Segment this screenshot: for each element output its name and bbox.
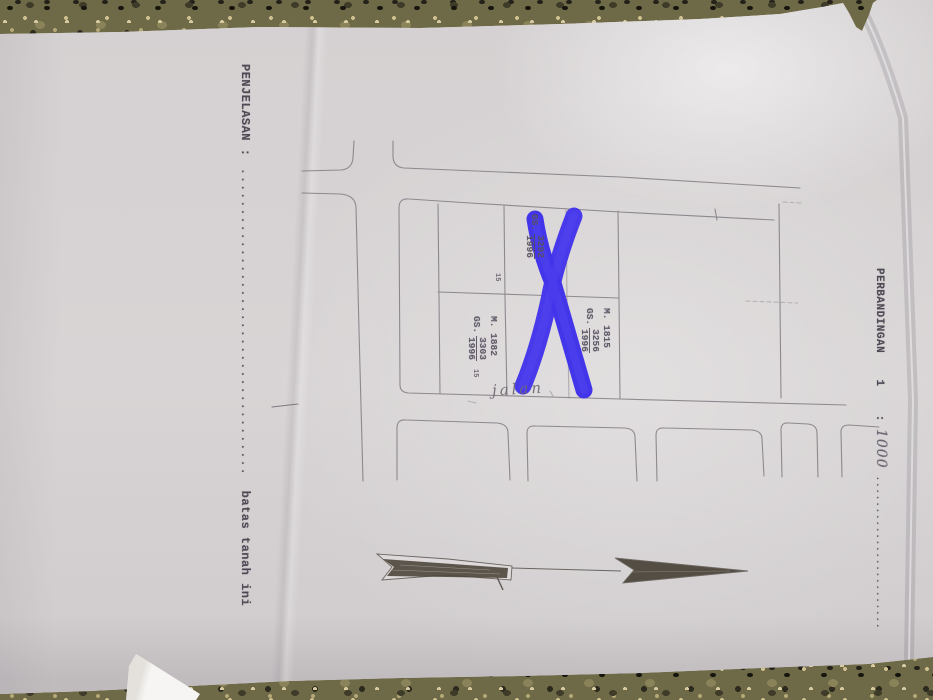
penjelasan-line: PENJELASAN : ...........................…: [238, 64, 252, 482]
scale-value-handwritten: 1000: [873, 429, 889, 469]
boundary-tick-1: [715, 209, 717, 220]
penjelasan-label: PENJELASAN: [238, 64, 252, 141]
south-block-4: [781, 423, 818, 477]
parcel-label-1815: M. 1815 GS.32561996: [579, 308, 612, 364]
dashed-midline: [746, 301, 798, 303]
gs-year: 1996: [579, 328, 589, 353]
penjelasan-note: batas tanah ini: [238, 491, 252, 607]
north-arrow-head: [615, 558, 748, 583]
south-block-2: [527, 426, 637, 481]
parcel-midline: [438, 292, 618, 298]
boundary-marker-15-b: 15: [471, 369, 479, 377]
perbandingan-dotted-rule: ........................: [874, 476, 884, 630]
street-grid: [272, 141, 879, 481]
parcel-label-3292: GS.32921996: [524, 214, 545, 266]
parcel-gs-row: GS.32561996: [579, 308, 600, 364]
south-block-1: [397, 420, 510, 480]
gs-number: 3292: [534, 234, 545, 259]
top-road-edge: [393, 141, 800, 188]
gs-number: 3303: [476, 336, 487, 361]
scale-ratio-number: 1: [873, 379, 885, 386]
parcel-gs-row: GS.32921996: [524, 214, 545, 266]
boundary-marker-15-a: 15: [493, 273, 501, 281]
perbandingan-colon: :: [873, 415, 885, 422]
north-arrow: [377, 554, 748, 590]
left-road-west-edge: [302, 193, 363, 481]
gs-number: 3256: [589, 328, 600, 353]
junction-corner-nw: [302, 141, 354, 171]
parcel-boundary-2: [504, 206, 507, 396]
photo-scene: { "scene": { "description": "photo of an…: [0, 0, 933, 700]
stray-pen-dash: [272, 404, 298, 407]
dashed-stub: [783, 202, 801, 203]
road-name-handwritten: jalan: [492, 379, 545, 400]
parcel-boundary-1: [438, 204, 440, 394]
document-paper: PENJELASAN : ...........................…: [0, 0, 933, 700]
parcel-boundary-5: [779, 204, 781, 398]
gs-year: 1996: [466, 336, 476, 361]
parcel-boundary-4: [618, 211, 620, 399]
gs-year: 1996: [524, 234, 534, 259]
arrow-shaft: [512, 568, 621, 571]
parcel-m-row: M. 1815: [600, 308, 612, 364]
boundary-tick-2: [468, 401, 476, 403]
south-block-3: [656, 428, 764, 481]
penjelasan-colon: :: [238, 149, 252, 157]
parcel-m-row: M. 1882: [487, 316, 499, 380]
perbandingan-label: PERBANDINGAN: [873, 268, 885, 353]
boundary-tick-3: [550, 391, 553, 396]
penjelasan-dotted-rule: ......................................: [238, 168, 250, 476]
perbandingan-line: PERBANDINGAN 1 : 1000 ..................…: [873, 268, 889, 504]
